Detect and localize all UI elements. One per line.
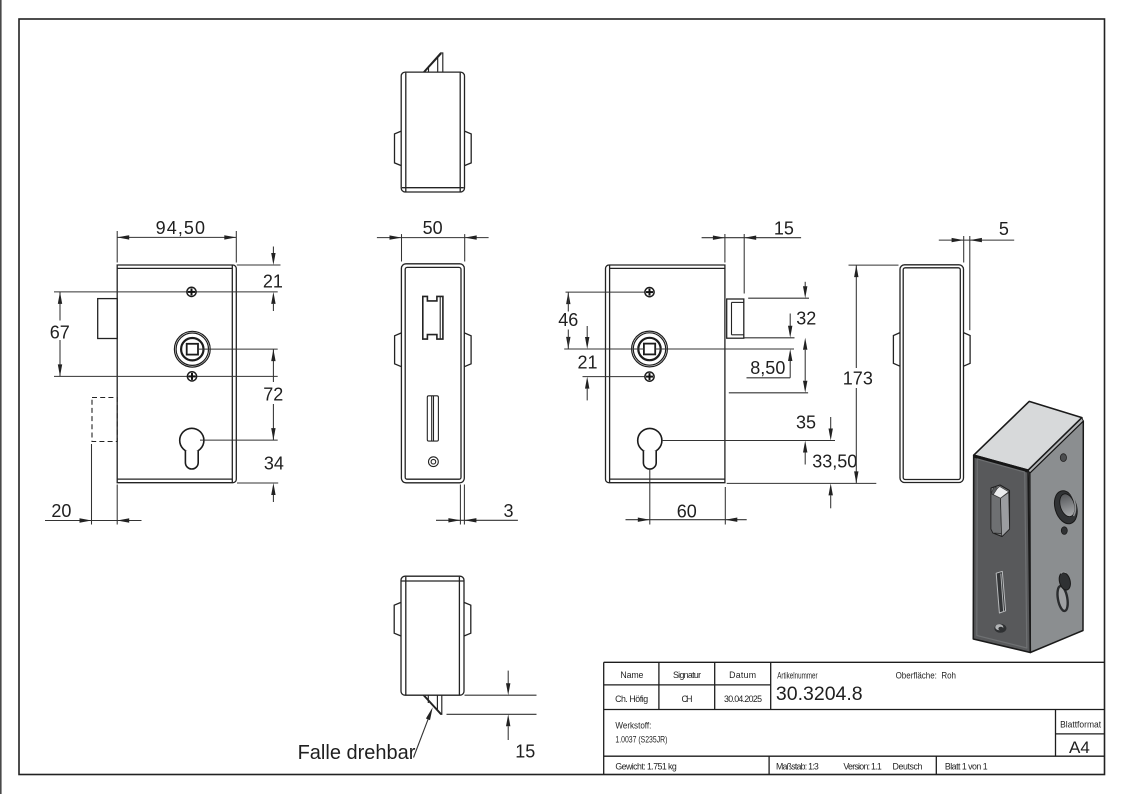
svg-text:72: 72 [263, 384, 283, 404]
svg-text:Blattformat: Blattformat [1060, 719, 1102, 729]
svg-text:Datum: Datum [729, 670, 756, 680]
svg-text:33,50: 33,50 [812, 451, 857, 471]
svg-text:46: 46 [558, 310, 578, 330]
svg-text:Blatt 1 von 1: Blatt 1 von 1 [945, 761, 988, 771]
svg-text:Gewicht: 1.751 kg: Gewicht: 1.751 kg [615, 762, 676, 772]
svg-text:35: 35 [796, 413, 816, 433]
svg-text:21: 21 [578, 353, 598, 373]
svg-text:1.0037 (S235JR): 1.0037 (S235JR) [615, 734, 667, 744]
svg-text:94,50: 94,50 [156, 218, 207, 238]
svg-text:32: 32 [796, 309, 816, 329]
svg-text:Name: Name [620, 670, 643, 680]
svg-text:8,50: 8,50 [750, 358, 785, 378]
svg-text:21: 21 [263, 271, 283, 291]
svg-text:Maßstab: 1:3: Maßstab: 1:3 [776, 761, 819, 771]
svg-text:30.04.2025: 30.04.2025 [724, 694, 762, 704]
svg-text:Version: 1.1: Version: 1.1 [843, 761, 881, 771]
svg-text:15: 15 [774, 218, 794, 238]
svg-text:CH: CH [682, 694, 693, 704]
svg-text:50: 50 [423, 218, 443, 238]
svg-text:3: 3 [504, 501, 514, 521]
svg-text:A4: A4 [1069, 738, 1090, 757]
svg-text:173: 173 [843, 369, 873, 389]
svg-text:Artikelnummer: Artikelnummer [777, 671, 817, 681]
svg-text:Falle drehbar: Falle drehbar [298, 742, 416, 764]
svg-text:30.3204.8: 30.3204.8 [776, 683, 863, 705]
svg-text:Werkstoff:: Werkstoff: [615, 720, 651, 730]
svg-text:15: 15 [515, 742, 535, 762]
svg-text:34: 34 [264, 453, 284, 473]
svg-text:Deutsch: Deutsch [893, 761, 923, 771]
svg-text:Signatur: Signatur [673, 670, 701, 680]
svg-text:Oberfläche: Roh: Oberfläche: Roh [896, 671, 956, 681]
svg-text:67: 67 [50, 322, 70, 342]
svg-text:5: 5 [999, 219, 1009, 239]
svg-text:20: 20 [51, 501, 71, 521]
svg-text:60: 60 [677, 501, 697, 521]
svg-text:Ch. Höfig: Ch. Höfig [615, 694, 648, 704]
